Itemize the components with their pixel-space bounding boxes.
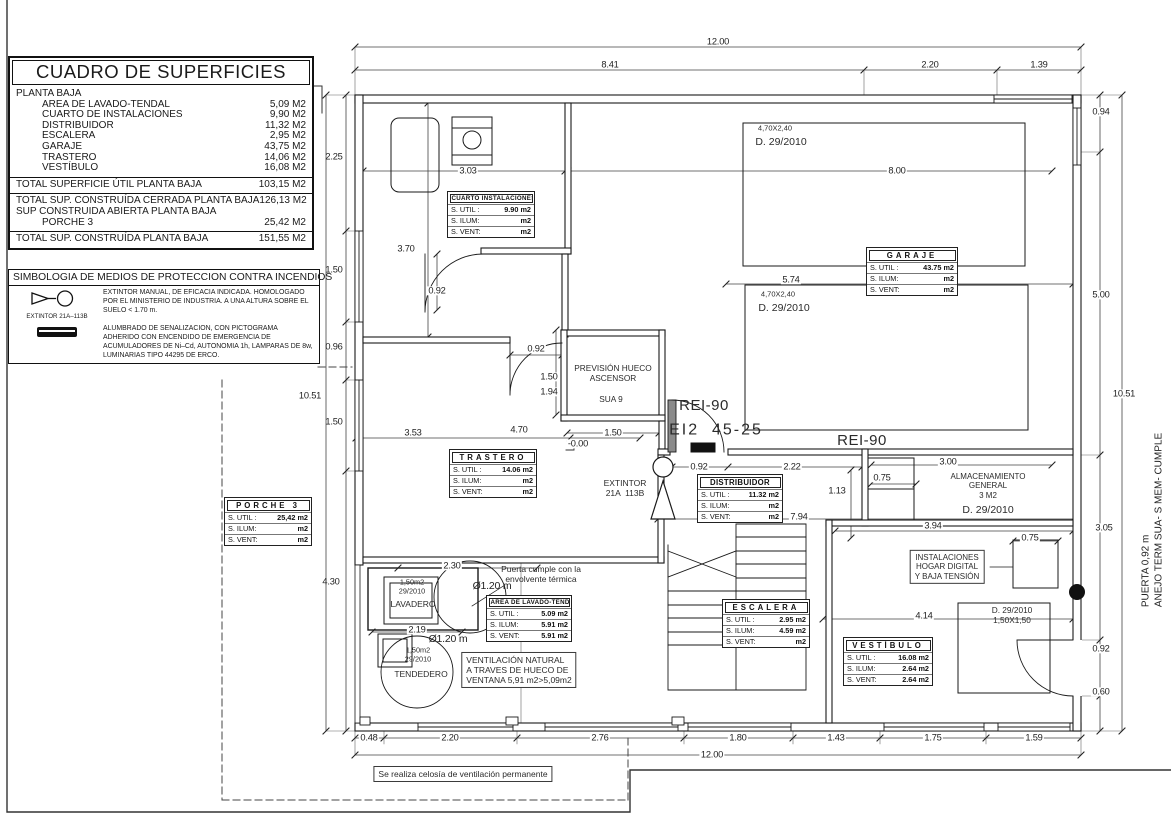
annotation-parking2-size: 4,70X2,40 bbox=[761, 291, 795, 300]
dimension-label: Ø1.20 m bbox=[429, 634, 468, 645]
annotation-instalaciones-hogar: INSTALACIONES HOGAR DIGITAL Y BAJA TENSI… bbox=[910, 550, 985, 584]
annotation-sua9: SUA 9 bbox=[599, 395, 623, 405]
dimension-label: 12.00 bbox=[699, 750, 724, 759]
room-table-row: S. ILUM:m2 bbox=[698, 500, 782, 511]
room-table-row: S. ILUM:5.91 m2 bbox=[487, 619, 571, 630]
dimension-label: 2.20 bbox=[440, 733, 460, 742]
dimension-label: 3.94 bbox=[923, 521, 943, 530]
room-table-row: S. ILUM:m2 bbox=[225, 523, 311, 534]
room-table-row: S. UTIL :2.95 m2 bbox=[723, 614, 809, 625]
room-title: VESTÍBULO bbox=[846, 640, 931, 651]
surface-item-row: VESTÍBULO16,08 M2 bbox=[16, 163, 306, 174]
total-util-row: TOTAL SUPERFICIE ÚTIL PLANTA BAJA 103,15… bbox=[16, 180, 306, 191]
room-table-cuarto-instalaciones: CUARTO INSTALACIONESS. UTIL :9.90 m2S. I… bbox=[447, 191, 535, 238]
room-table-row: S. UTIL :43.75 m2 bbox=[867, 262, 957, 273]
dimension-label: 4.70 bbox=[509, 425, 529, 434]
room-table-row: S. ILUM:m2 bbox=[450, 475, 536, 486]
room-title: TRASTERO bbox=[452, 452, 535, 463]
surfaces-section-label: PLANTA BAJA bbox=[16, 89, 81, 100]
room-table-garaje: GARAJES. UTIL :43.75 m2S. ILUM:m2S. VENT… bbox=[866, 247, 958, 296]
legend-item-extintor: EXTINTOR 21A–113B EXTINTOR MANUAL, DE EF… bbox=[9, 286, 319, 322]
legend-alumbrado-text: ALUMBRADO DE SENALIZACION, CON PICTOGRAM… bbox=[103, 325, 317, 361]
dimension-label: 10.51 bbox=[1111, 389, 1136, 398]
dimension-label: -0.00 bbox=[566, 439, 589, 448]
dimension-label: 3.05 bbox=[1094, 523, 1114, 532]
annotation-lavadero-name: LAVADERO bbox=[390, 599, 435, 609]
dimension-label: 3.53 bbox=[403, 428, 423, 437]
dimension-label: 4.30 bbox=[322, 577, 339, 586]
annotation-parking2-d: D. 29/2010 bbox=[758, 302, 809, 314]
room-title: GARAJE bbox=[869, 250, 956, 261]
surfaces-table: CUADRO DE SUPERFICIES PLANTA BAJA AREA D… bbox=[8, 56, 314, 250]
dimension-label: Ø1.20 m bbox=[473, 581, 512, 592]
dimension-label: 4.14 bbox=[914, 611, 934, 620]
room-title: PORCHE 3 bbox=[227, 500, 310, 511]
dimension-label: 8.41 bbox=[600, 60, 620, 69]
room-table-row: S. ILUM:m2 bbox=[448, 215, 534, 226]
room-table-row: S. UTIL :5.09 m2 bbox=[487, 608, 571, 619]
dimension-label: 1.75 bbox=[923, 733, 943, 742]
annotation-tendedero-name: TENDEDERO bbox=[394, 669, 447, 679]
room-table-row: S. VENT:m2 bbox=[450, 486, 536, 497]
room-table-trastero: TRASTEROS. UTIL :14.06 m2S. ILUM:m2S. VE… bbox=[449, 449, 537, 498]
dimension-label: 0.92 bbox=[1091, 644, 1111, 653]
annotation-lavadero-meta: 1,50m2 29/2010 bbox=[399, 578, 425, 595]
room-table-row: S. ILUM:4.59 m2 bbox=[723, 625, 809, 636]
room-title: ESCALERA bbox=[725, 602, 808, 613]
room-title: AREA DE LAVADO-TENDAL bbox=[489, 598, 570, 607]
margin-note-vertical: PUERTA 0,92 m ANEJO TERM SUA- S MEM- CUM… bbox=[1141, 433, 1166, 607]
dimension-label: 0.96 bbox=[325, 342, 342, 351]
annotation-ei2-45: EI2 45-25 bbox=[669, 422, 763, 441]
margin-note-line2: ANEJO TERM SUA- S MEM- CUMPLE bbox=[1153, 433, 1166, 607]
dimension-label: 12.00 bbox=[705, 37, 730, 46]
room-table-vestibulo: VESTÍBULOS. UTIL :16.08 m2S. ILUM:2.64 m… bbox=[843, 637, 933, 686]
total-final-row: TOTAL SUP. CONSTRUÍDA PLANTA BAJA 151,55… bbox=[16, 234, 306, 245]
annotation-rei90-a: REI-90 bbox=[679, 397, 729, 415]
annotation-almacenamiento: ALMACENAMIENTO GENERAL 3 M2 bbox=[951, 472, 1026, 500]
column-marker bbox=[1069, 584, 1085, 600]
room-table-area-lavado-tendal: AREA DE LAVADO-TENDALS. UTIL :5.09 m2S. … bbox=[486, 595, 572, 642]
dimension-label: 0.75 bbox=[872, 473, 892, 482]
dimension-label: 1.39 bbox=[1029, 60, 1049, 69]
dimension-label: 3.03 bbox=[458, 166, 478, 175]
room-table-row: S. VENT:m2 bbox=[723, 636, 809, 647]
room-table-distribuidor: DISTRIBUIDORS. UTIL :11.32 m2S. ILUM:m2S… bbox=[697, 474, 783, 523]
constructed-row: SUP CONSTRUIDA ABIERTA PLANTA BAJA bbox=[16, 207, 306, 218]
dimension-label: 5.74 bbox=[781, 275, 801, 284]
annotation-parking1-d: D. 29/2010 bbox=[755, 136, 806, 148]
dimension-label: 8.00 bbox=[887, 166, 907, 175]
legend-extintor-text: EXTINTOR MANUAL, DE EFICACIA INDICADA. H… bbox=[103, 289, 317, 320]
annotation-ventilacion-natural: VENTILACIÓN NATURAL A TRAVES DE HUECO DE… bbox=[461, 652, 576, 688]
room-table-porche-3: PORCHE 3S. UTIL :25,42 m2S. ILUM:m2S. VE… bbox=[224, 497, 312, 546]
annotation-rei90-b: REI-90 bbox=[837, 432, 887, 450]
emergency-light-icon bbox=[691, 443, 715, 452]
dimension-label: 1.13 bbox=[827, 486, 847, 495]
room-table-row: S. UTIL :25,42 m2 bbox=[225, 512, 311, 523]
constructed-row: PORCHE 325,42 M2 bbox=[16, 218, 306, 229]
margin-note-line1: PUERTA 0,92 m bbox=[1141, 433, 1154, 607]
dimension-label: 1.94 bbox=[539, 387, 559, 396]
annotation-extintor-plan-label: EXTINTOR 21A 113B bbox=[604, 478, 647, 498]
annotation-parking1-size: 4,70X2,40 bbox=[758, 125, 792, 134]
constructed-rows: TOTAL SUP. CONSTRUÍDA CERRADA PLANTA BAJ… bbox=[10, 193, 312, 231]
dimension-label: 0.94 bbox=[1091, 107, 1111, 116]
dimension-label: 0.75 bbox=[1020, 533, 1040, 542]
dimension-label: 0.60 bbox=[1091, 687, 1111, 696]
dimension-label: 0.92 bbox=[427, 286, 447, 295]
surface-item-row: GARAJE43,75 M2 bbox=[16, 142, 306, 153]
surfaces-table-items: PLANTA BAJA AREA DE LAVADO-TENDAL5,09 M2… bbox=[10, 87, 312, 177]
dimension-label: 2.22 bbox=[782, 462, 802, 471]
room-table-row: S. VENT:m2 bbox=[867, 284, 957, 295]
legend-extintor-caption: EXTINTOR 21A–113B bbox=[11, 313, 103, 320]
dimension-label: 1.80 bbox=[728, 733, 748, 742]
room-table-row: S. VENT:m2 bbox=[698, 511, 782, 522]
annotation-almacenamiento-d: D. 29/2010 bbox=[962, 504, 1013, 516]
room-table-row: S. ILUM:2.64 m2 bbox=[844, 663, 932, 674]
dimension-label: 7.94 bbox=[789, 512, 809, 521]
door-arc bbox=[1017, 640, 1073, 696]
extintor-icon bbox=[28, 289, 86, 308]
dimension-label: 2.30 bbox=[442, 561, 462, 570]
emergency-light-icon bbox=[35, 325, 79, 339]
room-table-row: S. VENT:m2 bbox=[225, 534, 311, 545]
extintor-icon bbox=[651, 457, 675, 519]
room-table-row: S. UTIL :9.90 m2 bbox=[448, 204, 534, 215]
annotation-prevision-hueco: PREVISIÓN HUECO ASCENSOR bbox=[574, 364, 651, 384]
room-title: CUARTO INSTALACIONES bbox=[450, 194, 533, 203]
dimension-label: 5.00 bbox=[1091, 290, 1111, 299]
dimension-label: 2.20 bbox=[920, 60, 940, 69]
room-table-row: S. VENT:2.64 m2 bbox=[844, 674, 932, 685]
dimension-label: 1.50 bbox=[325, 417, 342, 426]
dimension-label: 2.25 bbox=[325, 152, 342, 161]
legend-title: SIMBOLOGIA DE MEDIOS DE PROTECCION CONTR… bbox=[9, 270, 319, 286]
dimension-label: 1.50 bbox=[325, 265, 342, 274]
room-table-row: S. UTIL :16.08 m2 bbox=[844, 652, 932, 663]
dimension-label: 0.92 bbox=[689, 462, 709, 471]
floor-plan-sheet: CUADRO DE SUPERFICIES PLANTA BAJA AREA D… bbox=[0, 0, 1171, 819]
room-table-row: S. UTIL :11.32 m2 bbox=[698, 489, 782, 500]
annotation-tendedero-meta: 1,50m2 29/2010 bbox=[405, 646, 431, 663]
room-title: DISTRIBUIDOR bbox=[700, 477, 781, 488]
annotation-celosia: Se realiza celosía de ventilación perman… bbox=[373, 766, 552, 782]
fire-protection-legend: SIMBOLOGIA DE MEDIOS DE PROTECCION CONTR… bbox=[8, 269, 320, 364]
dimension-label: 0.92 bbox=[526, 344, 546, 353]
dimension-label: 10.51 bbox=[299, 391, 321, 400]
surfaces-table-title: CUADRO DE SUPERFICIES bbox=[12, 60, 310, 85]
dimension-label: 2.76 bbox=[590, 733, 610, 742]
dimension-label: 2.19 bbox=[407, 625, 427, 634]
room-table-row: S. UTIL :14.06 m2 bbox=[450, 464, 536, 475]
door-arc bbox=[425, 254, 483, 312]
dimension-label: 0.48 bbox=[359, 733, 379, 742]
room-table-row: S. ILUM:m2 bbox=[867, 273, 957, 284]
room-table-escalera: ESCALERAS. UTIL :2.95 m2S. ILUM:4.59 m2S… bbox=[722, 599, 810, 648]
dimension-label: 1.59 bbox=[1024, 733, 1044, 742]
annotation-vestibulo-window: D. 29/2010 1,50X1,50 bbox=[992, 606, 1033, 626]
dimension-label: 1.50 bbox=[603, 428, 623, 437]
dimension-label: 1.43 bbox=[826, 733, 846, 742]
dimension-label: 3.00 bbox=[938, 457, 958, 466]
annotation-puerta-envolvente: Puerta cumple con la envolvente térmica bbox=[501, 564, 581, 584]
legend-item-alumbrado: ALUMBRADO DE SENALIZACION, CON PICTOGRAM… bbox=[9, 322, 319, 363]
dimension-label: 1.50 bbox=[539, 372, 559, 381]
dimension-label: 3.70 bbox=[396, 244, 416, 253]
table-bracket bbox=[313, 86, 322, 113]
room-table-row: S. VENT:5.91 m2 bbox=[487, 630, 571, 641]
room-table-row: S. VENT:m2 bbox=[448, 226, 534, 237]
